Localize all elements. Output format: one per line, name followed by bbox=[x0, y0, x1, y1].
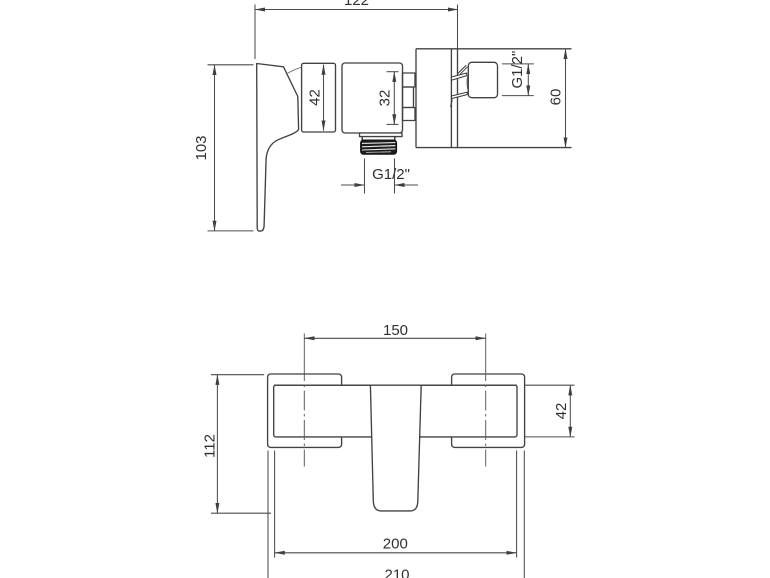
svg-text:122: 122 bbox=[344, 0, 369, 9]
svg-text:112: 112 bbox=[202, 434, 219, 458]
svg-text:32: 32 bbox=[376, 90, 393, 107]
svg-text:42: 42 bbox=[306, 89, 323, 106]
svg-text:103: 103 bbox=[193, 135, 210, 160]
svg-text:42: 42 bbox=[553, 403, 570, 420]
svg-text:G1/2": G1/2" bbox=[509, 51, 526, 89]
svg-text:200: 200 bbox=[383, 535, 408, 552]
svg-text:60: 60 bbox=[547, 89, 564, 106]
svg-text:G1/2": G1/2" bbox=[372, 166, 410, 183]
svg-text:150: 150 bbox=[383, 322, 408, 339]
svg-text:210: 210 bbox=[384, 567, 409, 578]
